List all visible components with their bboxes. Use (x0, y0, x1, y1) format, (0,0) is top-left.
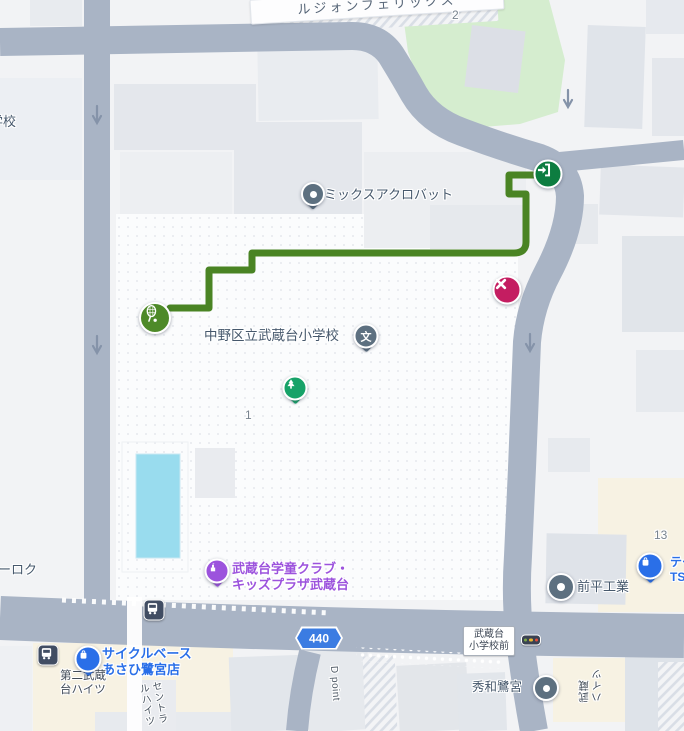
label-shuwa[interactable]: 秀和鷺宮 (472, 680, 522, 695)
label-kids-club[interactable]: 武蔵台学童クラブ・ キッズプラザ武蔵台 (232, 561, 349, 593)
bus-icon (39, 646, 55, 662)
road-bottom (0, 618, 684, 636)
parcel-number-1: 1 (245, 408, 252, 423)
pin-tailor-store[interactable] (637, 553, 664, 580)
pin-cycle-store[interactable] (75, 646, 102, 673)
shopping-bag-icon (77, 648, 91, 662)
dot-icon (543, 685, 550, 692)
parcel-number-2: 2 (452, 8, 459, 23)
dot-icon (310, 191, 317, 198)
bus-stop-icon[interactable] (38, 645, 59, 666)
bus-stop-icon[interactable] (144, 600, 165, 621)
building-icon (207, 561, 220, 574)
pin-shuwa[interactable] (533, 675, 559, 701)
label-rock-partial: ーロク (0, 562, 37, 578)
bus-stop-label[interactable]: 武蔵台 小学校前 (463, 626, 515, 656)
map-base-layer (0, 0, 684, 731)
dot-icon (557, 583, 565, 591)
traffic-light-icon (521, 635, 541, 646)
road-branch-east (560, 150, 684, 162)
label-cycle-store[interactable]: サイクルベース あさひ鷺宮店 (102, 646, 192, 678)
label-elementary-school[interactable]: 中野区立武蔵台小学校 (204, 328, 339, 344)
tennis-racket-icon (141, 304, 161, 324)
label-mix-acrobat[interactable]: ミックスアクロバット (324, 187, 453, 203)
label-tailor[interactable]: テー TS& (670, 555, 684, 584)
pin-elementary-school[interactable]: 文 (354, 324, 379, 349)
label-d-point: D point (327, 666, 342, 702)
pin-park-tree[interactable] (283, 376, 308, 401)
label-heights2: 第二武蔵 台ハイツ (60, 669, 106, 697)
destination-x-marker[interactable] (493, 276, 522, 305)
pin-kids-club[interactable] (205, 559, 230, 584)
route-shield-440: 440 (295, 627, 343, 650)
entrance-icon (536, 162, 553, 179)
pin-mix-acrobat[interactable] (301, 182, 325, 206)
down-arrow-icon (564, 90, 572, 107)
label-school-partial: 学校 (0, 114, 16, 130)
map-canvas: ルジォンフェリックス 2 学校 ミックスアクロバット 中野区立武蔵台小学校 1 … (0, 0, 684, 731)
pine-tree-icon (285, 378, 298, 391)
shopping-bag-icon (639, 555, 653, 569)
route-entrance-marker[interactable] (534, 160, 563, 189)
label-maehira[interactable]: 前平工業 (577, 579, 629, 595)
parcel-number-13: 13 (654, 528, 667, 543)
school-mon-icon: 文 (354, 324, 379, 349)
label-musashi-heights: 武蔵 ハイツ (578, 668, 604, 703)
bus-icon (145, 601, 161, 617)
road-stub-south (297, 652, 310, 731)
sports-ground-marker[interactable] (139, 302, 171, 334)
x-cross-icon (495, 278, 508, 291)
pin-maehira[interactable] (547, 573, 575, 601)
